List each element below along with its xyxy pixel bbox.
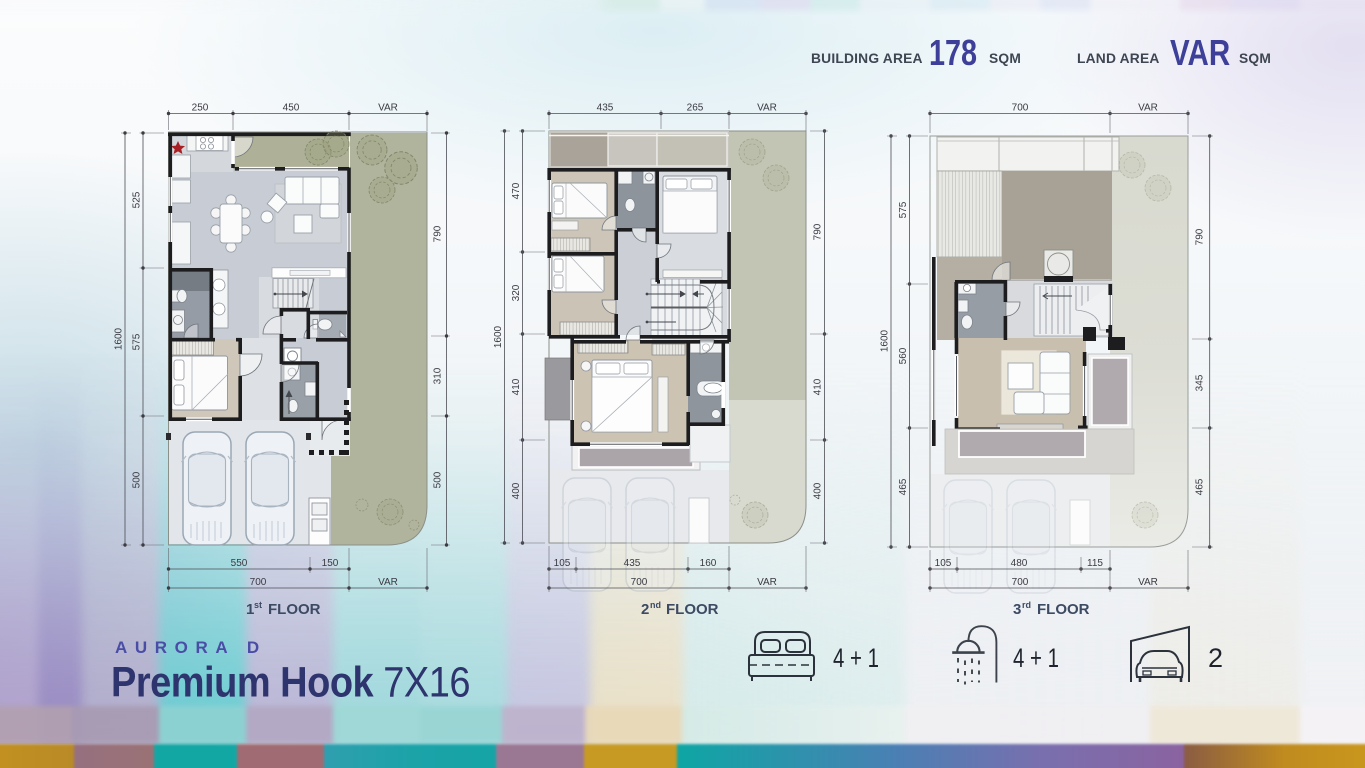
svg-text:700: 700 bbox=[1012, 103, 1029, 114]
svg-text:575: 575 bbox=[132, 333, 143, 350]
svg-text:160: 160 bbox=[700, 558, 717, 569]
svg-text:FLOOR: FLOOR bbox=[268, 601, 321, 618]
svg-text:115: 115 bbox=[1087, 558, 1103, 569]
svg-text:435: 435 bbox=[624, 558, 641, 569]
svg-text:525: 525 bbox=[132, 191, 143, 208]
svg-text:VAR: VAR bbox=[1138, 103, 1158, 114]
svg-text:450: 450 bbox=[283, 103, 300, 114]
svg-text:105: 105 bbox=[935, 558, 952, 569]
svg-text:st: st bbox=[254, 600, 262, 610]
svg-text:VAR: VAR bbox=[378, 103, 398, 114]
svg-text:400: 400 bbox=[511, 482, 522, 499]
svg-text:1600: 1600 bbox=[493, 325, 504, 348]
svg-text:435: 435 bbox=[597, 103, 614, 114]
svg-text:500: 500 bbox=[132, 471, 143, 488]
svg-text:1600: 1600 bbox=[114, 327, 125, 350]
svg-text:500: 500 bbox=[433, 471, 444, 488]
svg-text:VAR: VAR bbox=[378, 577, 398, 588]
svg-text:250: 250 bbox=[192, 103, 209, 114]
svg-text:VAR: VAR bbox=[757, 103, 777, 114]
svg-text:465: 465 bbox=[1195, 478, 1206, 495]
svg-text:465: 465 bbox=[898, 478, 909, 495]
svg-text:310: 310 bbox=[433, 367, 444, 384]
svg-text:790: 790 bbox=[813, 223, 824, 240]
svg-text:470: 470 bbox=[511, 182, 522, 199]
svg-text:790: 790 bbox=[1195, 228, 1206, 245]
svg-text:2: 2 bbox=[1208, 643, 1223, 673]
svg-text:575: 575 bbox=[898, 201, 909, 218]
svg-text:410: 410 bbox=[511, 378, 522, 395]
svg-text:VAR: VAR bbox=[1138, 577, 1158, 588]
svg-text:320: 320 bbox=[511, 284, 522, 301]
svg-text:4 + 1: 4 + 1 bbox=[833, 643, 879, 673]
svg-text:265: 265 bbox=[687, 103, 704, 114]
svg-text:VAR: VAR bbox=[757, 577, 777, 588]
svg-text:790: 790 bbox=[433, 225, 444, 242]
svg-text:nd: nd bbox=[650, 600, 661, 610]
svg-text:150: 150 bbox=[322, 558, 339, 569]
svg-text:560: 560 bbox=[898, 347, 909, 364]
svg-text:480: 480 bbox=[1011, 558, 1028, 569]
svg-text:4 + 1: 4 + 1 bbox=[1013, 643, 1059, 673]
svg-text:345: 345 bbox=[1195, 374, 1206, 391]
svg-text:700: 700 bbox=[631, 577, 648, 588]
svg-text:700: 700 bbox=[250, 577, 267, 588]
svg-text:2: 2 bbox=[641, 601, 649, 618]
svg-text:105: 105 bbox=[554, 558, 571, 569]
svg-text:410: 410 bbox=[813, 378, 824, 395]
svg-text:400: 400 bbox=[813, 482, 824, 499]
svg-text:550: 550 bbox=[231, 558, 248, 569]
svg-text:700: 700 bbox=[1012, 577, 1029, 588]
svg-text:rd: rd bbox=[1022, 600, 1031, 610]
svg-text:1600: 1600 bbox=[880, 329, 891, 352]
